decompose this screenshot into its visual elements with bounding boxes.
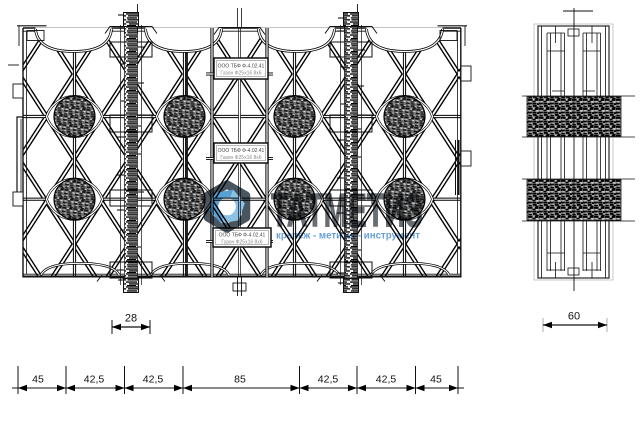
svg-text:42,5: 42,5 <box>143 374 164 386</box>
svg-text:28: 28 <box>125 313 137 325</box>
svg-text:45: 45 <box>32 374 44 386</box>
svg-text:42,5: 42,5 <box>318 374 339 386</box>
svg-text:42,5: 42,5 <box>84 374 105 386</box>
svg-text:85: 85 <box>234 374 246 386</box>
svg-text:42,5: 42,5 <box>376 374 397 386</box>
svg-text:Газон Ф25х16 8х6: Газон Ф25х16 8х6 <box>220 71 261 77</box>
svg-text:ООО ТБФ Ф-4.02.41: ООО ТБФ Ф-4.02.41 <box>219 233 266 239</box>
svg-text:60: 60 <box>568 311 580 323</box>
svg-text:Газон Ф25х16 8х6: Газон Ф25х16 8х6 <box>221 240 262 246</box>
svg-text:Газон Ф25х16 8х6: Газон Ф25х16 8х6 <box>220 155 261 161</box>
svg-text:крепёж - метизы - инструмент: крепёж - метизы - инструмент <box>276 230 420 242</box>
svg-text:ООО ТБФ Ф-4.02.41: ООО ТБФ Ф-4.02.41 <box>218 64 265 70</box>
svg-text:45: 45 <box>430 374 442 386</box>
svg-text:ООО ТБФ Ф-4.02.41: ООО ТБФ Ф-4.02.41 <box>218 148 265 154</box>
